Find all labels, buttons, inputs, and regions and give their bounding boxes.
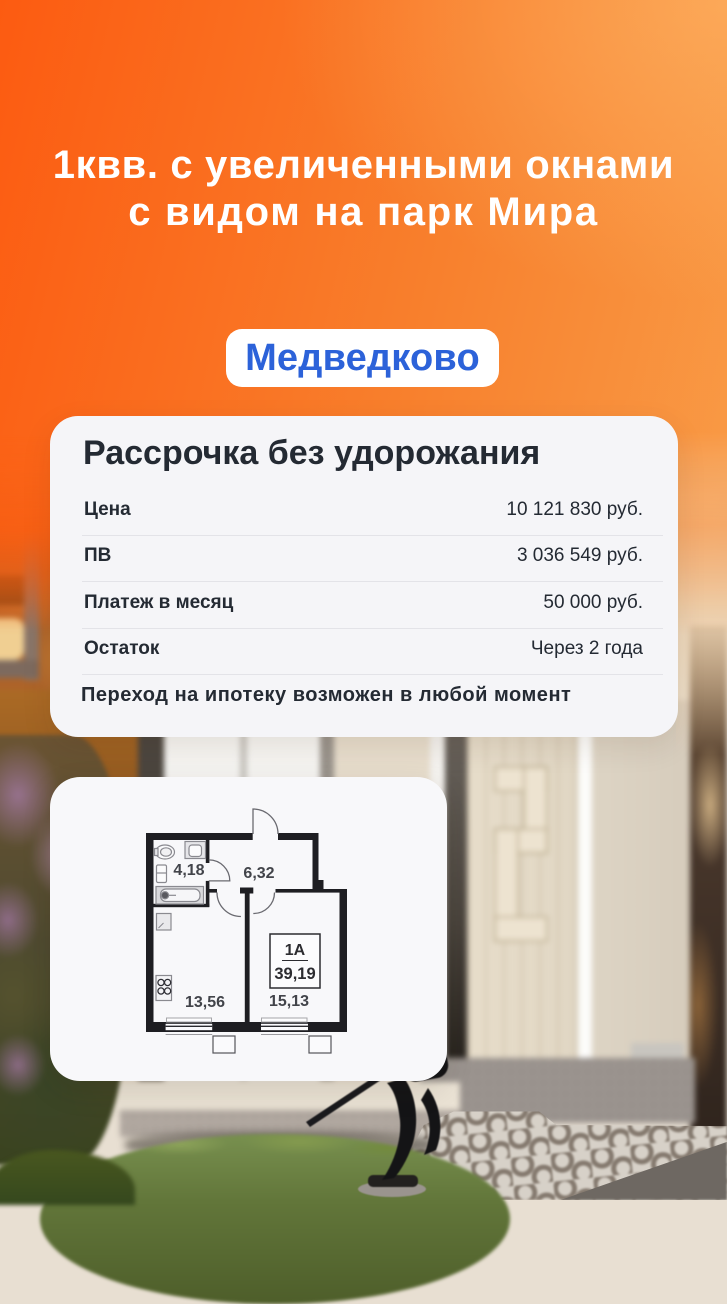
svg-text:6,32: 6,32: [243, 865, 274, 882]
svg-text:1А: 1А: [285, 942, 306, 959]
svg-text:15,13: 15,13: [269, 993, 309, 1010]
svg-text:13,56: 13,56: [185, 994, 225, 1011]
svg-text:4,18: 4,18: [173, 862, 204, 879]
svg-text:39,19: 39,19: [274, 965, 315, 983]
